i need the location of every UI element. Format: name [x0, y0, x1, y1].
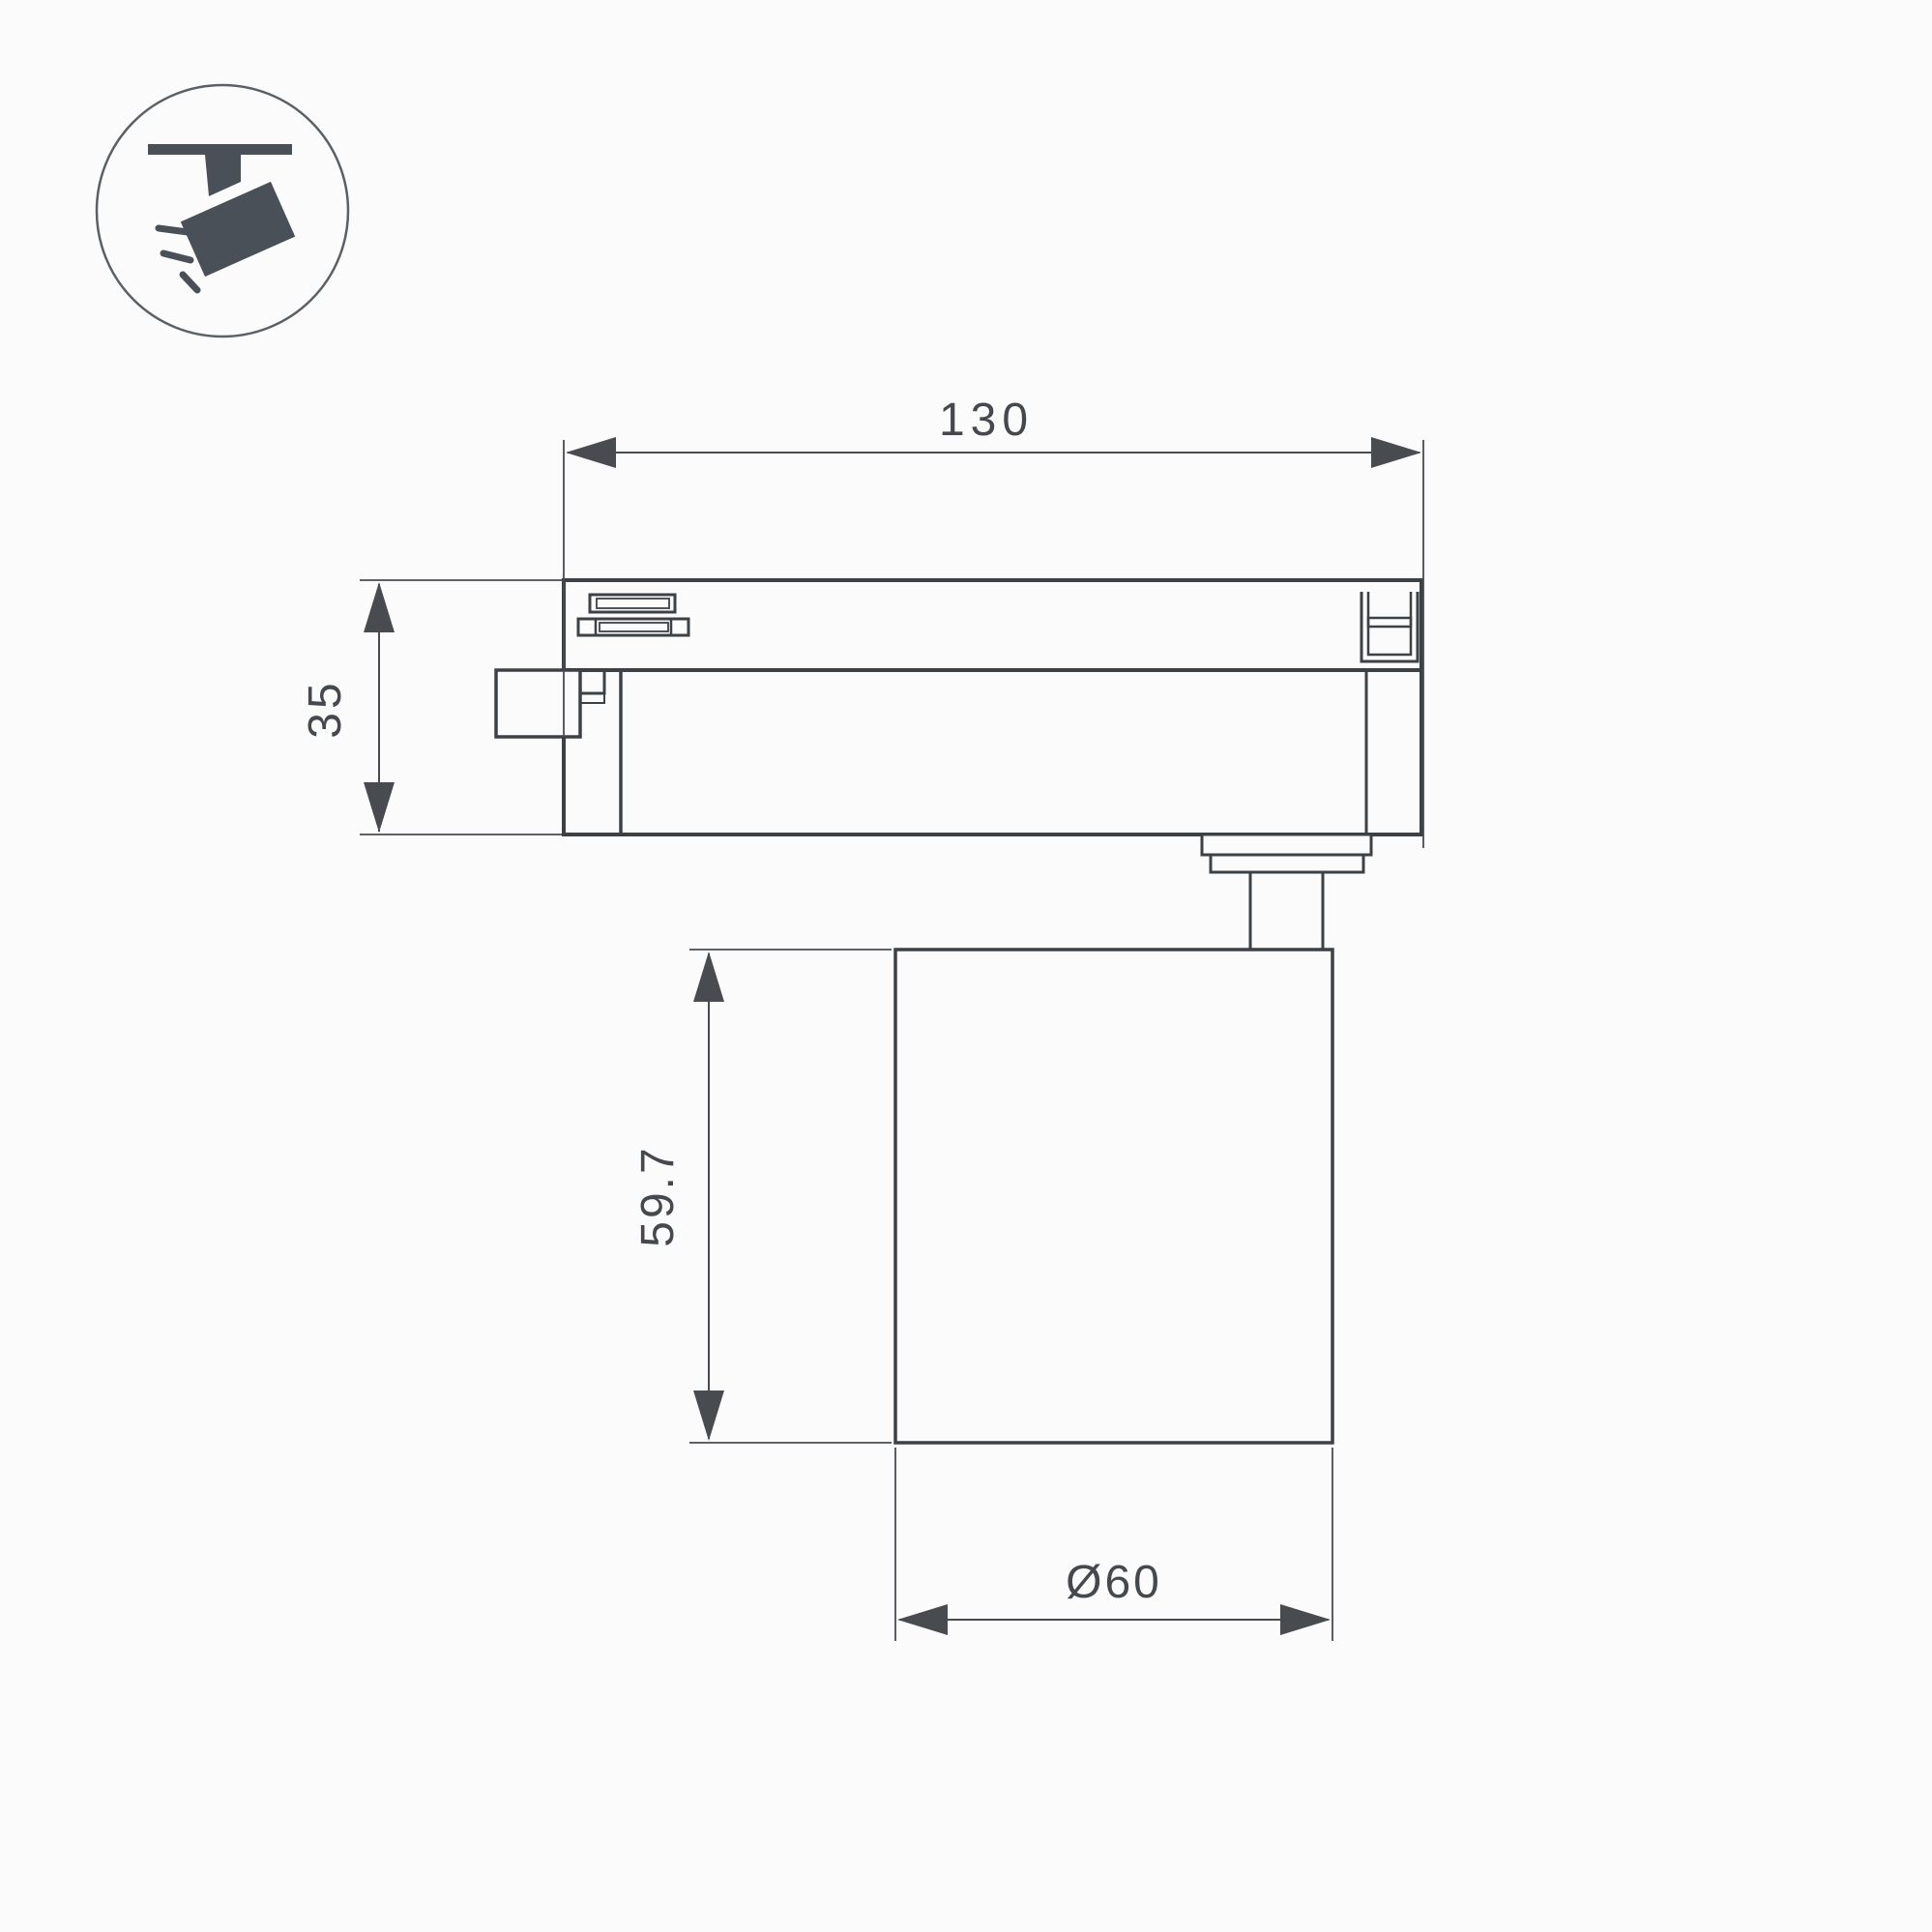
lamp-body-outline: [895, 950, 1332, 1443]
dim-body-label: 59.7: [632, 1145, 684, 1246]
lock-block: [496, 670, 580, 737]
icon-light-ray: [159, 228, 188, 232]
track-rail-outline: [564, 580, 1421, 670]
track-spotlight-icon: [97, 85, 348, 337]
dim-adapter-label: 35: [300, 679, 351, 738]
swivel-stem: [1250, 872, 1323, 950]
icon-track-bar: [148, 144, 292, 155]
dim-width-label: 130: [939, 395, 1034, 446]
hinge-plate-upper: [1202, 834, 1371, 855]
drawing-canvas: 130 35 59.7 Ø60: [0, 0, 1932, 1932]
hinge-plate-lower: [1211, 855, 1363, 872]
dim-diameter-label: Ø60: [1066, 1557, 1162, 1608]
adapter-housing-outline: [564, 670, 1421, 834]
